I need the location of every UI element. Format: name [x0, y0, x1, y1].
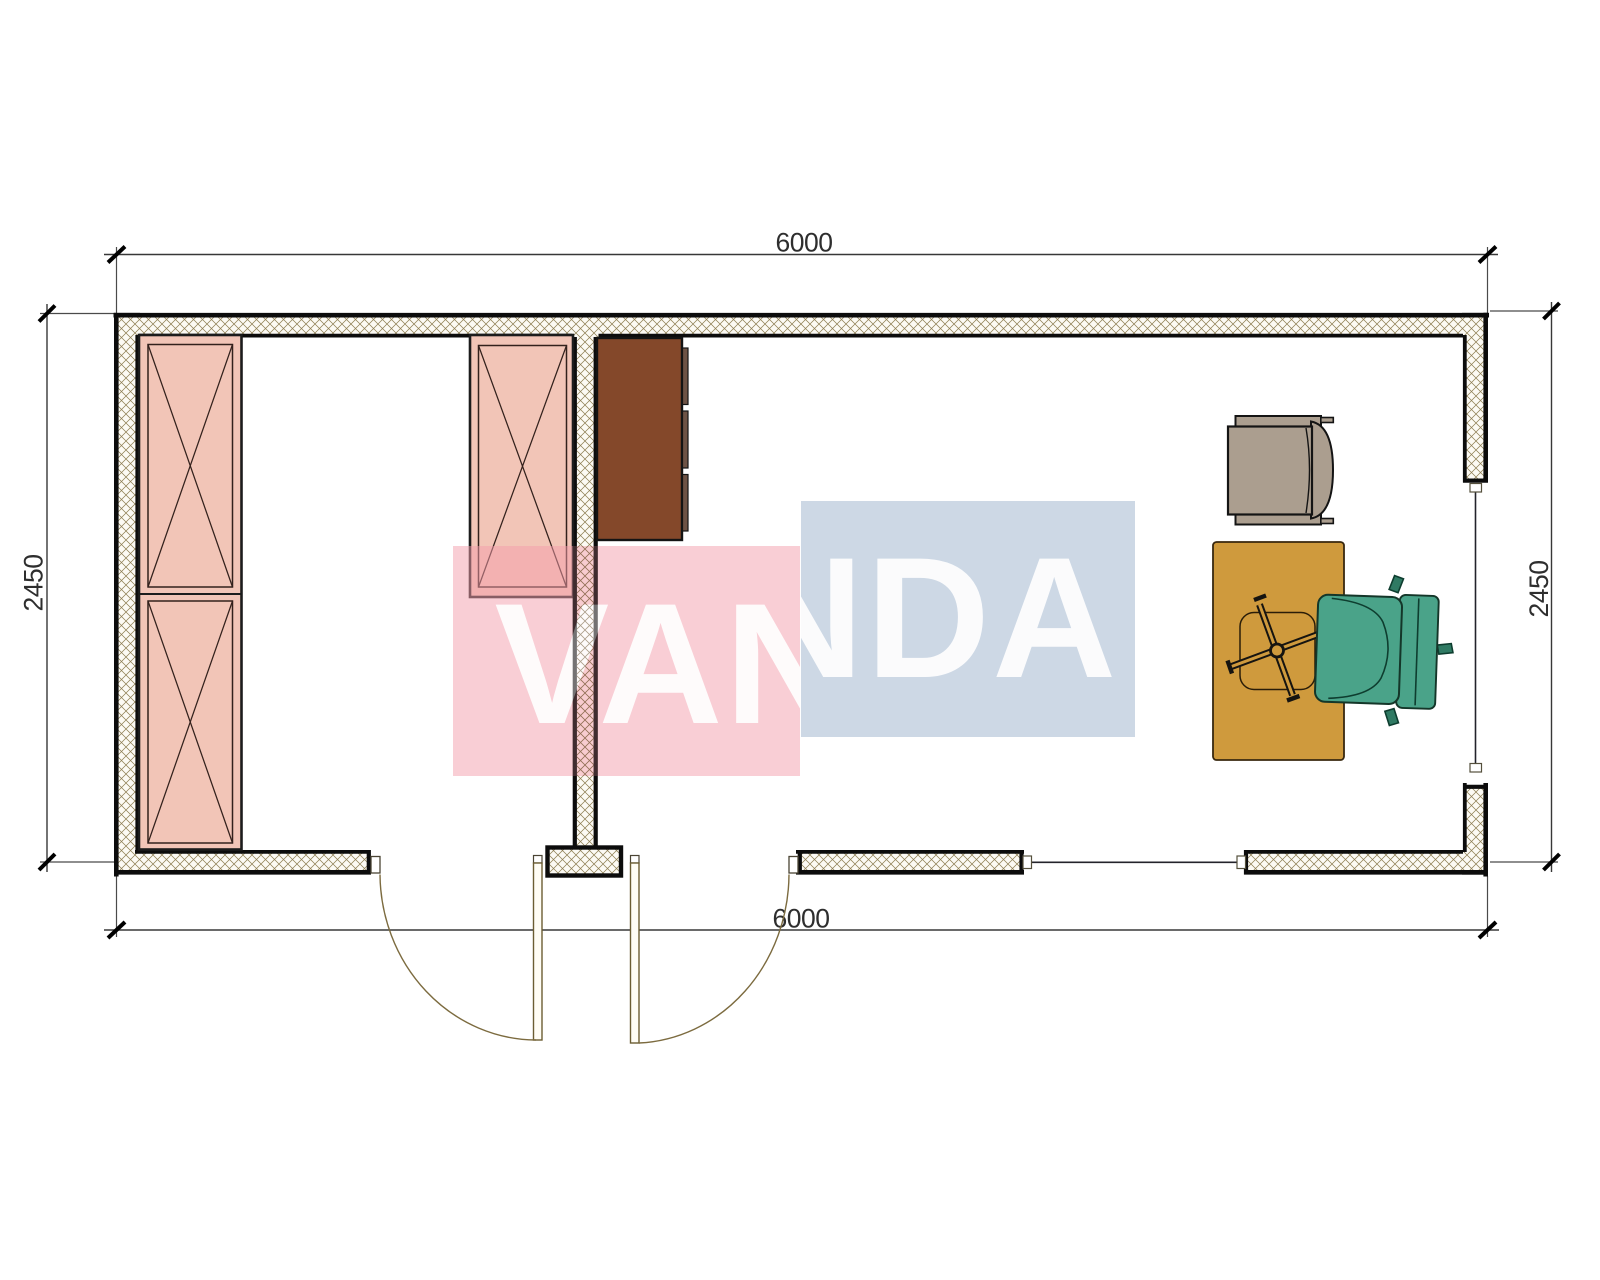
- svg-text:2450: 2450: [1524, 561, 1554, 618]
- svg-text:6000: 6000: [776, 228, 833, 258]
- svg-text:2450: 2450: [19, 555, 49, 612]
- svg-text:6000: 6000: [773, 904, 830, 934]
